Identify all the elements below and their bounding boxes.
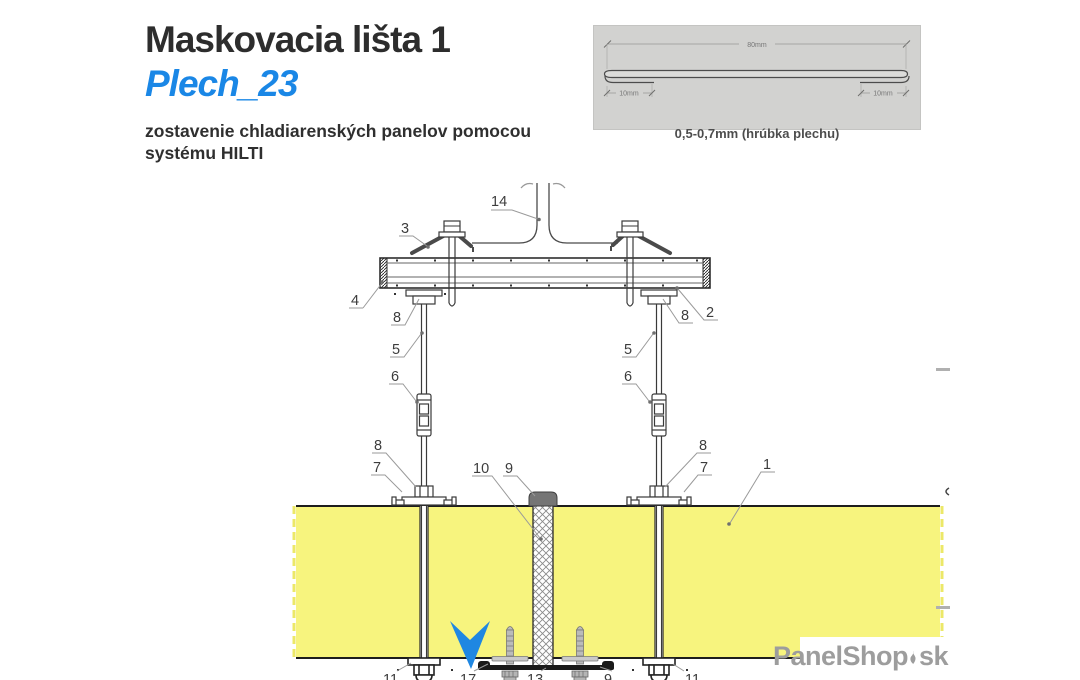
assembly-drawing: 14 3 4 8 2 8 5 5 6 6 8 7 8 7 10 9 1 11 1…: [280, 170, 960, 680]
slide-page: Maskovacia lišta 1 Plech_23 zostavenie c…: [0, 0, 1080, 680]
bottom-nut-right: [632, 658, 688, 680]
callout-11-bottom-right: 11: [685, 672, 700, 680]
description: zostavenie chladiarenských panelov pomoc…: [145, 120, 615, 164]
watermark-name: PanelShop: [773, 641, 908, 671]
upper-flange-left: [406, 290, 442, 304]
flame-icon: [909, 650, 918, 665]
watermark: PanelShopsk: [773, 641, 973, 672]
callout-9: 9: [505, 461, 513, 477]
dimension-label-right: 10mm: [873, 91, 893, 98]
callout-6-left: 6: [391, 369, 399, 385]
panel-joint-center: [529, 492, 557, 672]
dimension-left-lip: 10mm: [604, 84, 655, 98]
header-block: Maskovacia lišta 1 Plech_23 zostavenie c…: [145, 18, 615, 164]
panel-assembly: [294, 506, 942, 658]
dimension-label-left: 10mm: [619, 91, 639, 98]
callout-1: 1: [763, 457, 771, 473]
callout-11-bottom-left: 11: [383, 672, 398, 680]
callout-7-mid-right: 7: [700, 460, 708, 476]
callout-17-bottom: 17: [460, 672, 476, 680]
callout-9-bottom: 9: [604, 672, 612, 680]
turnbuckle-right: [652, 394, 666, 436]
joint-insulation-10: [533, 506, 553, 668]
callout-2: 2: [706, 305, 714, 321]
callout-8-mid-left: 8: [374, 438, 382, 454]
lower-flange-right: [627, 486, 691, 505]
callout-4: 4: [351, 293, 359, 309]
turnbuckle-left: [417, 394, 431, 436]
dimension-total-width: 80mm: [604, 40, 910, 70]
dimension-right-lip: 10mm: [858, 84, 909, 98]
callout-8-top-right: 8: [681, 308, 689, 324]
lower-flange-left: [392, 486, 456, 505]
callout-10: 10: [473, 461, 489, 477]
cover-profile-14: [472, 183, 618, 243]
callout-8-mid-right: 8: [699, 438, 707, 454]
bottom-nut-left: [397, 658, 453, 680]
inset-caption: 0,5-0,7mm (hrúbka plechu): [593, 126, 921, 141]
callout-7-mid-left: 7: [373, 460, 381, 476]
watermark-tld: sk: [919, 641, 948, 671]
masking-strip-13: [478, 665, 614, 670]
dimension-label-total: 80mm: [747, 42, 767, 49]
panel-joint-left: [420, 506, 428, 662]
callout-6-right: 6: [624, 369, 632, 385]
page-title: Maskovacia lišta 1: [145, 18, 615, 62]
description-line-2: systému HILTI: [145, 143, 263, 163]
callout-13-bottom: 13: [527, 672, 543, 680]
callout-14: 14: [491, 194, 507, 210]
profile-drawing: 80mm 10mm: [593, 25, 921, 130]
profile-detail-inset: 80mm 10mm: [593, 25, 921, 130]
callout-5-right: 5: [624, 342, 632, 358]
description-line-1: zostavenie chladiarenských panelov pomoc…: [145, 121, 531, 141]
panel-joint-right: [655, 506, 663, 662]
page-subtitle: Plech_23: [145, 62, 615, 106]
callout-3: 3: [401, 221, 409, 237]
sheet-profile: [605, 71, 910, 83]
callout-8-top-left: 8: [393, 310, 401, 326]
upper-flange-right: [641, 290, 677, 304]
callout-5-left: 5: [392, 342, 400, 358]
